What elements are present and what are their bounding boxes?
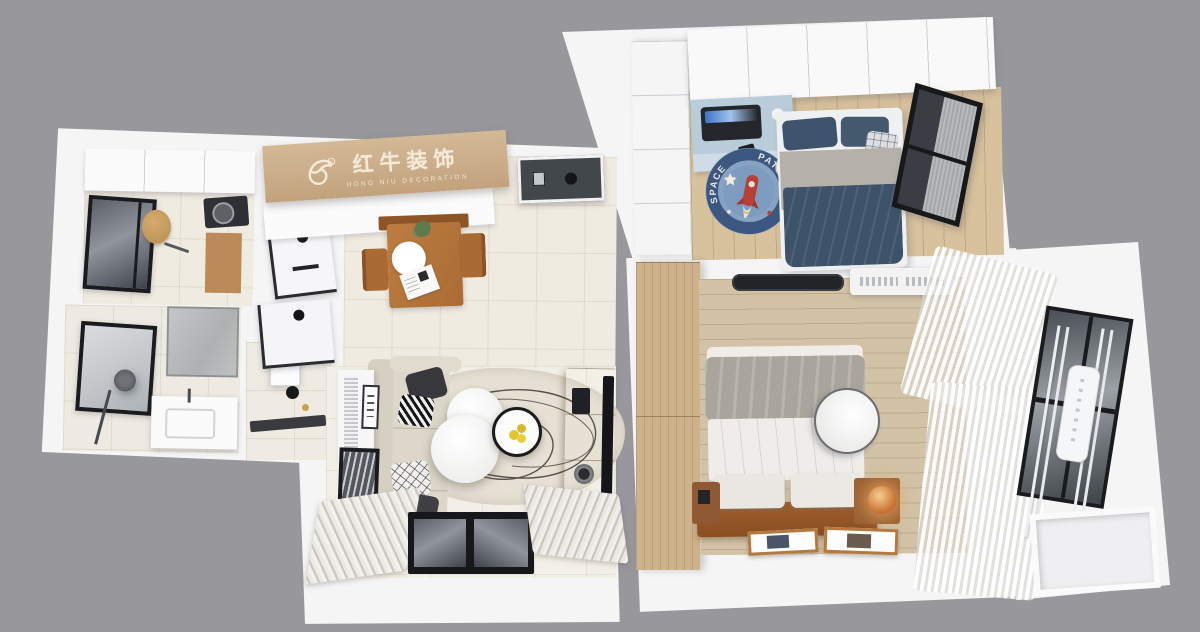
tv-screen bbox=[601, 376, 614, 500]
dining-chair-right bbox=[459, 233, 487, 278]
counter-cabinet-2 bbox=[257, 299, 334, 369]
bathroom-window bbox=[75, 321, 157, 416]
counter-knob-2 bbox=[293, 309, 305, 321]
door-peephole bbox=[565, 172, 577, 184]
kitchen-upper-cabinets bbox=[85, 149, 256, 194]
curtain-bottom-left bbox=[305, 487, 421, 584]
kitchen-window bbox=[83, 195, 157, 294]
floor-frame-2 bbox=[824, 527, 899, 556]
floor-frame-2-art bbox=[847, 534, 871, 549]
rack-host-dots bbox=[1071, 379, 1085, 443]
floor-frame-1-art bbox=[767, 535, 790, 549]
pot bbox=[212, 201, 235, 224]
magazine-lines bbox=[404, 276, 420, 293]
lemon-2 bbox=[517, 424, 526, 433]
curtain-bottom-right bbox=[523, 484, 628, 563]
wall-art-frame bbox=[361, 385, 380, 430]
cooktop bbox=[203, 195, 249, 228]
master-pillow-2 bbox=[790, 473, 858, 508]
sink-faucet bbox=[188, 389, 191, 403]
gold-valve bbox=[302, 404, 309, 411]
amber-lamp bbox=[868, 486, 896, 514]
ac-grille-1 bbox=[860, 277, 898, 286]
floorplan-render: ® 红牛装饰 HONG NIU DECORATION bbox=[0, 0, 1200, 632]
speaker bbox=[574, 464, 594, 484]
kids-bedroom: SPACE PATROL bbox=[626, 15, 1012, 268]
mirror-cabinet bbox=[166, 306, 239, 377]
balcony bbox=[1006, 244, 1176, 606]
bottom-window-pane-right bbox=[474, 519, 528, 567]
round-mirror bbox=[814, 388, 880, 454]
bathroom bbox=[63, 304, 242, 453]
nightstand-left bbox=[692, 482, 720, 524]
kids-pillow-1 bbox=[782, 116, 838, 151]
living-room bbox=[312, 366, 624, 606]
master-wardrobe bbox=[636, 262, 700, 570]
entry-door bbox=[517, 155, 605, 204]
coffee-table-large bbox=[431, 415, 499, 483]
bull-logo-icon: ® bbox=[302, 153, 338, 189]
kitchen-room bbox=[83, 149, 256, 307]
counter-handle bbox=[293, 264, 319, 271]
kitchen-window-mullion bbox=[133, 202, 142, 288]
sink-basin bbox=[165, 408, 216, 439]
kids-top-cabinets bbox=[687, 17, 996, 102]
master-pillow-1 bbox=[714, 474, 784, 509]
ac-vent-grille bbox=[344, 376, 358, 456]
balcony-floor-panel bbox=[1029, 506, 1160, 597]
pillow-zebra bbox=[397, 393, 435, 428]
laptop bbox=[700, 104, 762, 141]
wall-art-marks bbox=[367, 395, 375, 417]
magazine-qr bbox=[418, 270, 430, 282]
sink-counter bbox=[151, 396, 238, 449]
dining-chair-left bbox=[361, 248, 388, 291]
media-box bbox=[572, 388, 590, 414]
tray-table bbox=[492, 407, 542, 457]
bottom-window-pane-left bbox=[414, 519, 466, 567]
nightstand-item bbox=[698, 490, 710, 504]
registered-mark: ® bbox=[329, 158, 333, 165]
kitchen-door-sill bbox=[205, 233, 242, 294]
kids-wardrobe bbox=[631, 40, 691, 255]
lemon-3 bbox=[517, 434, 526, 443]
floor-drain bbox=[286, 386, 299, 399]
master-bedroom bbox=[628, 246, 1036, 612]
brand-name-cn: 红牛装饰 bbox=[351, 142, 461, 179]
laptop-screen bbox=[705, 109, 758, 124]
ceiling-vent bbox=[732, 274, 844, 291]
floor-frame-1 bbox=[747, 528, 818, 556]
door-plate bbox=[533, 172, 545, 186]
dining-set bbox=[358, 213, 489, 313]
living-bottom-window bbox=[408, 512, 534, 574]
